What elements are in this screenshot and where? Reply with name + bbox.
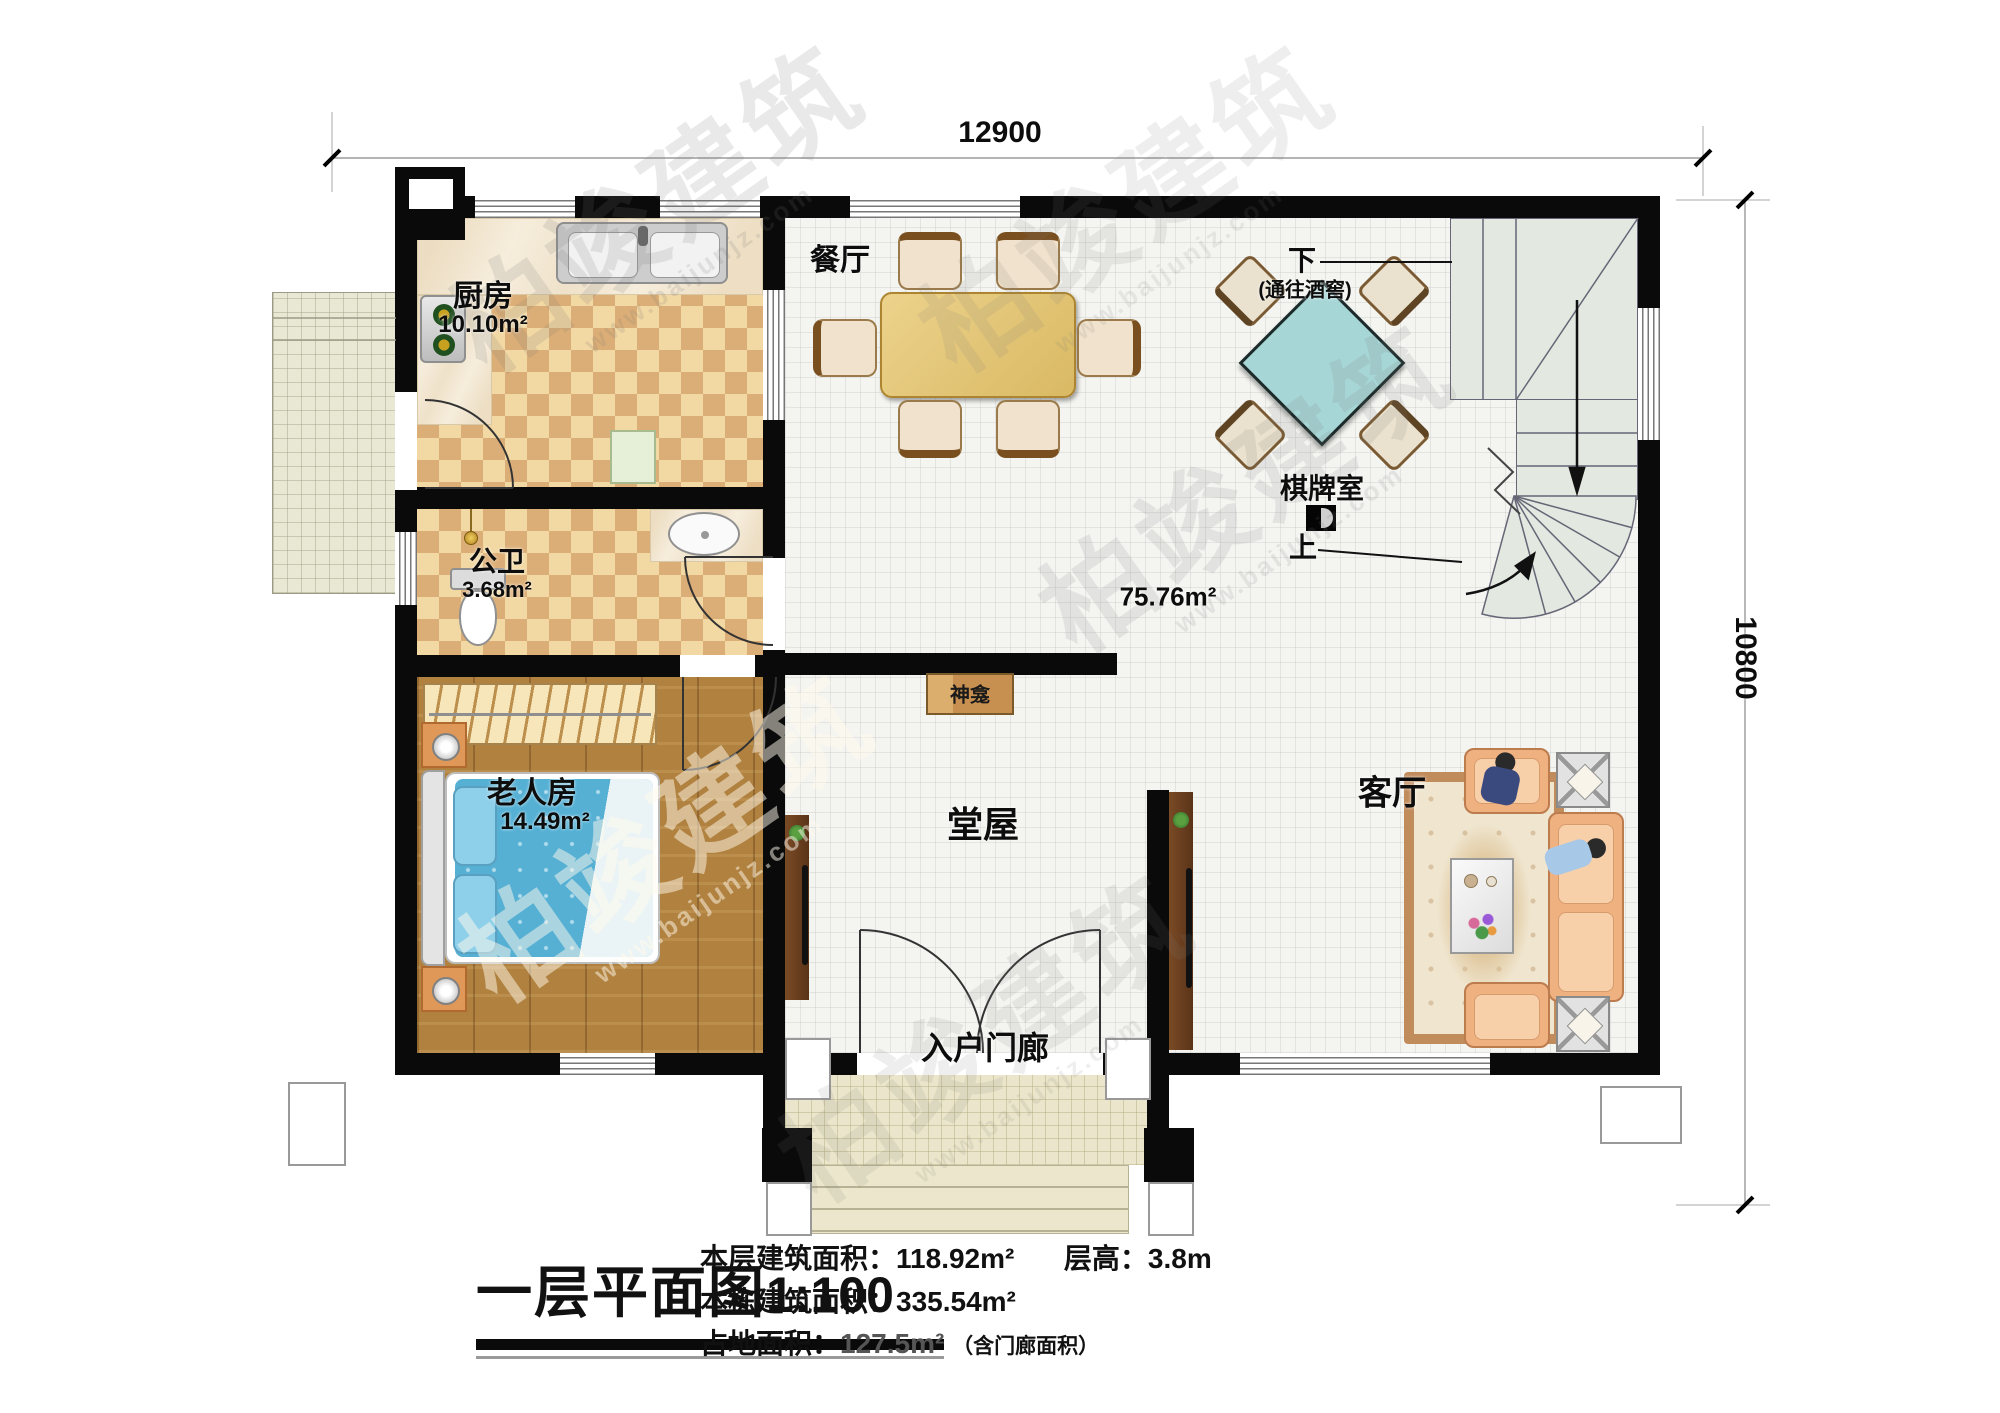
room-label-kitchen: 厨房 xyxy=(453,271,513,315)
nightstand-top xyxy=(421,722,467,768)
open-area-label: 75.76m² xyxy=(1120,582,1217,613)
stair-landing xyxy=(1450,218,1638,400)
kitchen-cabinet xyxy=(610,430,656,484)
room-label-bath: 公卫 xyxy=(469,540,525,580)
lamp-top xyxy=(432,733,460,761)
stats-line-2: 本栋建筑面积：335.54m² xyxy=(700,1281,1212,1324)
stair-flight xyxy=(1516,400,1638,500)
wardrobe-rail xyxy=(429,713,651,716)
dim-right-label: 10800 xyxy=(1728,616,1762,699)
chimney-void xyxy=(409,179,453,209)
wall-right xyxy=(1638,196,1660,308)
wall-bottom xyxy=(395,1053,560,1075)
corner-pier-left xyxy=(288,1082,346,1166)
stats-line-1: 本层建筑面积：118.92m² 层高：3.8m xyxy=(700,1238,1212,1281)
bed-headboard xyxy=(421,770,445,966)
side-table-bottom xyxy=(1556,996,1610,1052)
coffee-table xyxy=(1450,858,1514,954)
porch-pillar-left xyxy=(762,1128,812,1182)
teacup xyxy=(1464,874,1478,888)
wall-left xyxy=(395,605,417,1075)
floorplan-canvas: 柏竣建筑www.baijunjz.com 柏竣建筑www.baijunjz.co… xyxy=(0,0,2000,1413)
room-area-elder: 14.49m² xyxy=(500,808,589,836)
wall-left xyxy=(395,196,417,392)
wall-kitchen-bath xyxy=(417,487,763,509)
wall-bath-elder xyxy=(755,655,763,677)
window-top-kitchen2 xyxy=(660,196,760,218)
dining-chair xyxy=(996,232,1060,290)
window-elder-room xyxy=(560,1053,655,1075)
side-table-top xyxy=(1556,752,1610,808)
shrine-label: 神龛 xyxy=(950,679,990,708)
room-label-living: 客厅 xyxy=(1358,766,1426,815)
window-kitchen-pass xyxy=(763,290,785,420)
tv-icon xyxy=(1186,868,1192,988)
kitchen-sink xyxy=(556,222,728,284)
bed-pillow-2 xyxy=(453,874,497,954)
stats-block: 本层建筑面积：118.92m² 层高：3.8m 本栋建筑面积：335.54m² … xyxy=(700,1238,1212,1366)
wall-hall-top xyxy=(785,653,1117,675)
wall-bath-elder xyxy=(417,655,680,677)
wall-bottom xyxy=(1490,1053,1660,1075)
porch-pilaster-right xyxy=(1105,1038,1151,1100)
room-label-hall: 堂屋 xyxy=(947,796,1019,848)
wall-kitchen-right xyxy=(763,196,785,290)
stair-up-label: 上 xyxy=(1289,526,1317,566)
dining-chair xyxy=(898,232,962,290)
wall-top xyxy=(1020,196,1660,218)
window-stairs xyxy=(1638,308,1660,440)
pillar-base-left xyxy=(766,1182,812,1236)
room-area-kitchen: 10.10m² xyxy=(438,311,527,339)
tv-cabinet-right xyxy=(1169,792,1193,1050)
window-top-dining xyxy=(850,196,1020,218)
bath-sink-drain xyxy=(701,531,709,539)
window-living xyxy=(1240,1053,1490,1075)
wall-kitchen-right xyxy=(763,420,785,558)
sink-basin-left xyxy=(568,232,638,278)
porch-wall-left xyxy=(763,1075,785,1133)
lamp-bottom xyxy=(432,977,460,1005)
stair-down-note: (通往酒窖) xyxy=(1258,274,1351,303)
wall-top xyxy=(575,196,660,218)
dining-chair xyxy=(1077,319,1141,377)
plant-icon xyxy=(1173,812,1189,828)
wall-right xyxy=(1638,440,1660,1075)
pillar-base-right xyxy=(1148,1182,1194,1236)
window-top-kitchen1 xyxy=(475,196,575,218)
tv-icon xyxy=(802,865,808,965)
nightstand-bottom xyxy=(421,966,467,1012)
window-bath xyxy=(395,532,417,605)
tv-cabinet-left xyxy=(785,815,809,1000)
room-area-bath: 3.68m² xyxy=(462,577,532,603)
stats-line-3: 占地面积：127.5m² （含门廊面积） xyxy=(700,1323,1212,1366)
room-label-porch: 入户门廊 xyxy=(921,1023,1049,1069)
sink-basin-right xyxy=(650,232,720,278)
flower-vase xyxy=(1462,908,1502,946)
side-platform xyxy=(272,292,399,594)
porch-steps xyxy=(805,1165,1129,1234)
bath-lamp xyxy=(470,505,472,533)
porch-pillar-right xyxy=(1144,1128,1194,1182)
kitchen-side-door-gap xyxy=(395,392,417,490)
dining-chair xyxy=(898,400,962,458)
corner-pier-right xyxy=(1600,1086,1682,1144)
wall-living-divider xyxy=(1147,790,1169,1075)
plant-icon xyxy=(789,825,805,841)
dining-table xyxy=(880,292,1076,398)
wall-left xyxy=(395,490,417,532)
bath-sink xyxy=(668,512,740,556)
sink-faucet xyxy=(638,226,648,246)
column-symbol-inner xyxy=(1321,508,1333,528)
dining-chair xyxy=(996,400,1060,458)
teacup xyxy=(1486,876,1497,887)
armchair-bottom xyxy=(1464,982,1550,1048)
porch-floor xyxy=(785,1075,1147,1165)
dining-chair xyxy=(813,319,877,377)
porch-pilaster-left xyxy=(785,1038,831,1100)
room-label-elder: 老人房 xyxy=(487,768,577,812)
room-label-chess: 棋牌室 xyxy=(1280,467,1364,507)
wall-elder-right xyxy=(763,650,785,1075)
room-label-dining: 餐厅 xyxy=(810,235,870,279)
dim-top-label: 12900 xyxy=(958,116,1041,150)
